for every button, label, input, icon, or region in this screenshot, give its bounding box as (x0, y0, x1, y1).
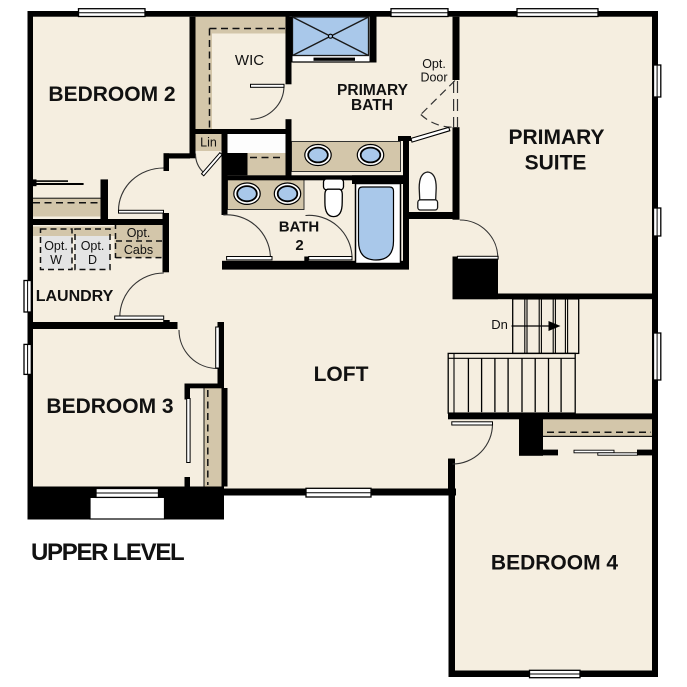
svg-text:Opt.: Opt. (127, 226, 151, 240)
svg-text:W: W (50, 253, 62, 267)
svg-text:BEDROOM 2: BEDROOM 2 (48, 83, 175, 106)
svg-text:Opt.: Opt. (81, 239, 105, 253)
svg-text:BATH: BATH (351, 97, 393, 114)
svg-text:D: D (88, 253, 97, 267)
svg-text:Door: Door (420, 71, 447, 85)
svg-text:SUITE: SUITE (525, 152, 587, 175)
svg-text:WIC: WIC (235, 52, 264, 69)
svg-text:LAUNDRY: LAUNDRY (36, 288, 114, 305)
svg-text:PRIMARY: PRIMARY (508, 126, 604, 149)
svg-text:Lin: Lin (200, 136, 217, 150)
svg-text:BEDROOM 4: BEDROOM 4 (491, 552, 619, 575)
svg-text:Opt.: Opt. (422, 57, 446, 71)
svg-text:UPPER LEVEL: UPPER LEVEL (31, 539, 184, 566)
svg-text:Dn: Dn (491, 317, 508, 332)
svg-text:Opt.: Opt. (44, 239, 68, 253)
svg-text:BEDROOM 3: BEDROOM 3 (46, 395, 173, 418)
svg-text:LOFT: LOFT (314, 363, 369, 386)
svg-text:2: 2 (295, 237, 303, 254)
svg-text:BATH: BATH (279, 219, 320, 236)
svg-text:Cabs: Cabs (124, 243, 153, 257)
